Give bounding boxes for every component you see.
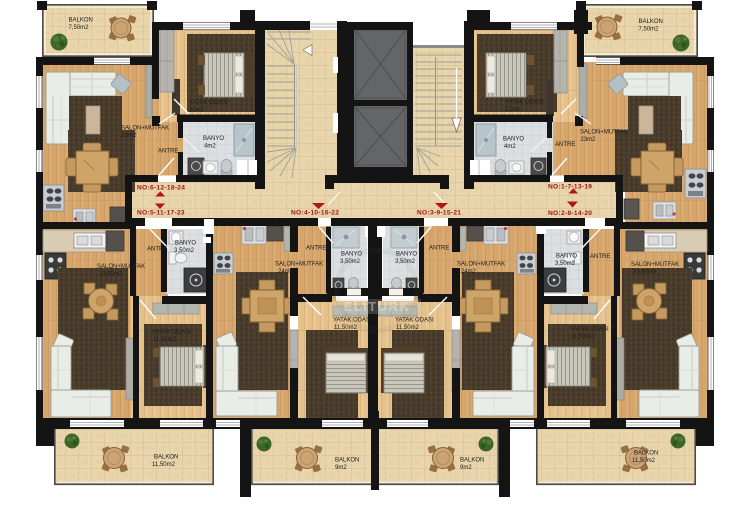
svg-text:BANYO: BANYO xyxy=(556,254,577,260)
svg-text:9m2: 9m2 xyxy=(460,465,472,471)
svg-text:YATAK ODASI: YATAK ODASI xyxy=(152,330,191,336)
svg-text:SALON+MUTFAK: SALON+MUTFAK xyxy=(275,262,323,268)
svg-text:NO:6-12-18-24: NO:6-12-18-24 xyxy=(137,185,185,192)
svg-text:BALKON: BALKON xyxy=(154,455,178,461)
svg-text:11,50m2: 11,50m2 xyxy=(396,325,420,331)
svg-text:11,50m2: 11,50m2 xyxy=(152,462,176,468)
svg-text:YATAK ODASI: YATAK ODASI xyxy=(505,100,544,106)
svg-text:23m2: 23m2 xyxy=(122,133,138,139)
svg-text:NO:5-11-17-23: NO:5-11-17-23 xyxy=(137,210,185,217)
svg-text:11,50m2: 11,50m2 xyxy=(153,337,177,343)
svg-text:YATAK ODASI: YATAK ODASI xyxy=(395,318,434,324)
svg-text:3,50m2: 3,50m2 xyxy=(340,259,361,265)
svg-text:23,50m2: 23,50m2 xyxy=(99,272,123,278)
svg-text:ANTRE: ANTRE xyxy=(158,149,178,155)
svg-text:BANYO: BANYO xyxy=(503,137,524,143)
svg-text:BANYO: BANYO xyxy=(175,241,196,247)
svg-text:ELITURK: ELITURK xyxy=(344,299,411,314)
svg-text:SALON+MUTFAK: SALON+MUTFAK xyxy=(121,126,169,132)
svg-text:NO:1-7-13-19: NO:1-7-13-19 xyxy=(548,184,592,191)
svg-text:7,50m2: 7,50m2 xyxy=(639,27,660,33)
svg-text:BANYO: BANYO xyxy=(341,252,362,258)
svg-text:BALKON: BALKON xyxy=(639,19,663,25)
svg-text:11,50m2: 11,50m2 xyxy=(571,334,595,340)
svg-text:3,50m2: 3,50m2 xyxy=(174,248,195,254)
svg-text:BANYO: BANYO xyxy=(396,252,417,258)
svg-text:NO:4-10-16-22: NO:4-10-16-22 xyxy=(291,210,339,217)
svg-text:23,50m2: 23,50m2 xyxy=(633,270,657,276)
svg-text:BALKON: BALKON xyxy=(634,451,658,457)
svg-text:BANYO: BANYO xyxy=(203,136,224,142)
svg-text:BALKON: BALKON xyxy=(335,458,359,464)
svg-text:YATAK ODASI: YATAK ODASI xyxy=(570,327,609,333)
svg-text:7,50m2: 7,50m2 xyxy=(69,25,90,31)
svg-text:12m2: 12m2 xyxy=(189,108,205,114)
svg-text:ANTRE: ANTRE xyxy=(147,247,167,253)
svg-text:SALON+MUTFAK: SALON+MUTFAK xyxy=(631,262,679,268)
svg-text:11,50m2: 11,50m2 xyxy=(632,458,656,464)
svg-text:9m2: 9m2 xyxy=(335,465,347,471)
svg-text:BALKON: BALKON xyxy=(69,18,93,24)
svg-text:SALON+MUTFAK: SALON+MUTFAK xyxy=(97,264,145,270)
svg-text:NO:3-9-15-21: NO:3-9-15-21 xyxy=(417,210,461,217)
svg-text:3,50m2: 3,50m2 xyxy=(395,259,416,265)
svg-text:YATAK ODASI: YATAK ODASI xyxy=(333,318,372,324)
svg-text:SALON+MUTFAK: SALON+MUTFAK xyxy=(457,262,505,268)
svg-text:ANTRE: ANTRE xyxy=(555,142,575,148)
svg-text:12m2: 12m2 xyxy=(505,107,521,113)
svg-text:4m2: 4m2 xyxy=(204,144,216,150)
svg-text:YATAK ODASI: YATAK ODASI xyxy=(189,100,228,106)
svg-text:ANTRE: ANTRE xyxy=(306,246,326,252)
svg-text:11,50m2: 11,50m2 xyxy=(334,325,358,331)
svg-text:ANTRE: ANTRE xyxy=(429,246,449,252)
svg-text:24m2: 24m2 xyxy=(278,269,294,275)
svg-text:4m2: 4m2 xyxy=(504,144,516,150)
svg-text:3,50m2: 3,50m2 xyxy=(555,261,576,267)
svg-text:BALKON: BALKON xyxy=(460,458,484,464)
svg-text:23m2: 23m2 xyxy=(581,137,597,143)
svg-text:NO:2-8-14-20: NO:2-8-14-20 xyxy=(548,210,592,217)
svg-text:SALON+MUTFAK: SALON+MUTFAK xyxy=(580,130,628,136)
svg-text:24m2: 24m2 xyxy=(461,269,477,275)
svg-text:ANTRE: ANTRE xyxy=(590,254,610,260)
